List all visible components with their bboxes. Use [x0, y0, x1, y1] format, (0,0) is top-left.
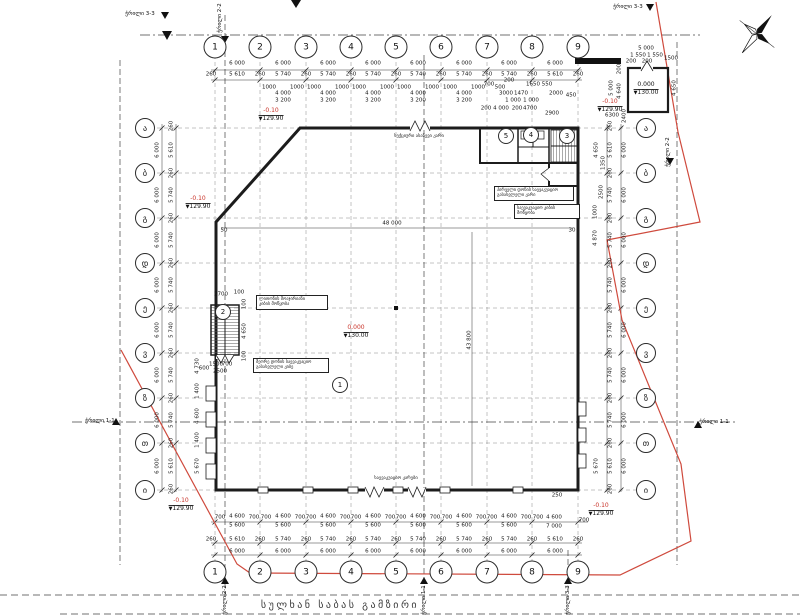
- top-right-rooms: [480, 58, 621, 186]
- north-arrow: [725, 2, 789, 67]
- vestibule: [549, 163, 578, 186]
- plan-drawing: [0, 0, 800, 616]
- street-title: სულხან საბას გამზირი: [190, 600, 490, 611]
- legend-bar: [575, 58, 621, 64]
- floor-plan-canvas: 112233445566778899ააბბგგდდეევვზზთთიი 6 0…: [0, 0, 800, 616]
- section-lines: [0, 15, 800, 614]
- column: [394, 306, 398, 310]
- wc-fixture: [521, 131, 527, 139]
- left-stairwell: [211, 305, 239, 363]
- wc-fixture: [538, 131, 544, 139]
- detached-building: [628, 61, 668, 112]
